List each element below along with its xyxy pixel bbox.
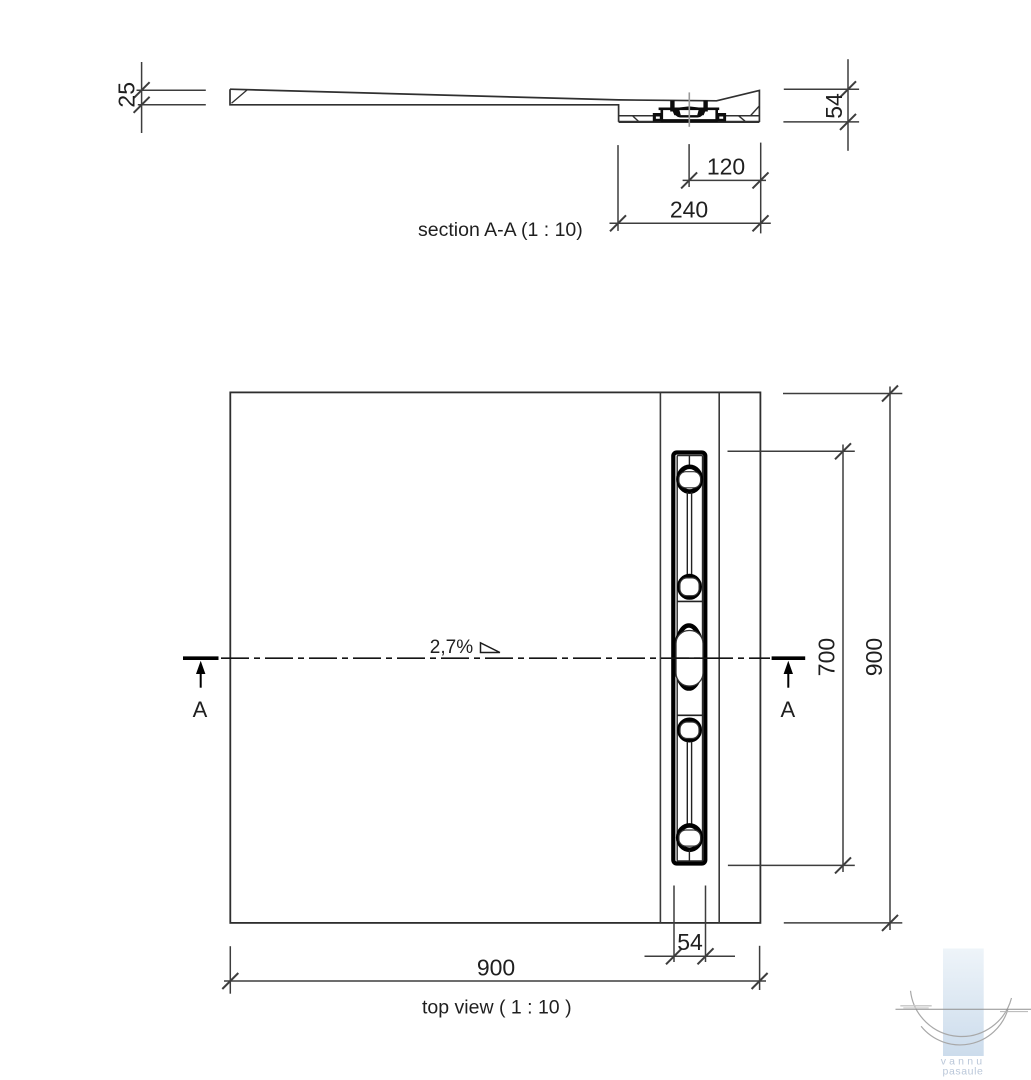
svg-text:section A-A (1 : 10): section A-A (1 : 10) <box>418 219 583 241</box>
svg-text:54: 54 <box>821 93 847 119</box>
svg-text:900: 900 <box>477 955 515 981</box>
svg-text:240: 240 <box>670 197 708 223</box>
svg-text:54: 54 <box>677 929 703 955</box>
svg-text:700: 700 <box>813 638 839 676</box>
svg-text:A: A <box>781 697 796 722</box>
svg-text:120: 120 <box>707 154 745 180</box>
svg-text:25: 25 <box>114 82 140 108</box>
svg-text:2,7%: 2,7% <box>430 637 473 658</box>
svg-text:top view ( 1 : 10 ): top view ( 1 : 10 ) <box>422 997 572 1019</box>
svg-text:900: 900 <box>861 638 887 676</box>
svg-text:pasaule: pasaule <box>943 1066 984 1078</box>
svg-text:A: A <box>193 697 208 722</box>
